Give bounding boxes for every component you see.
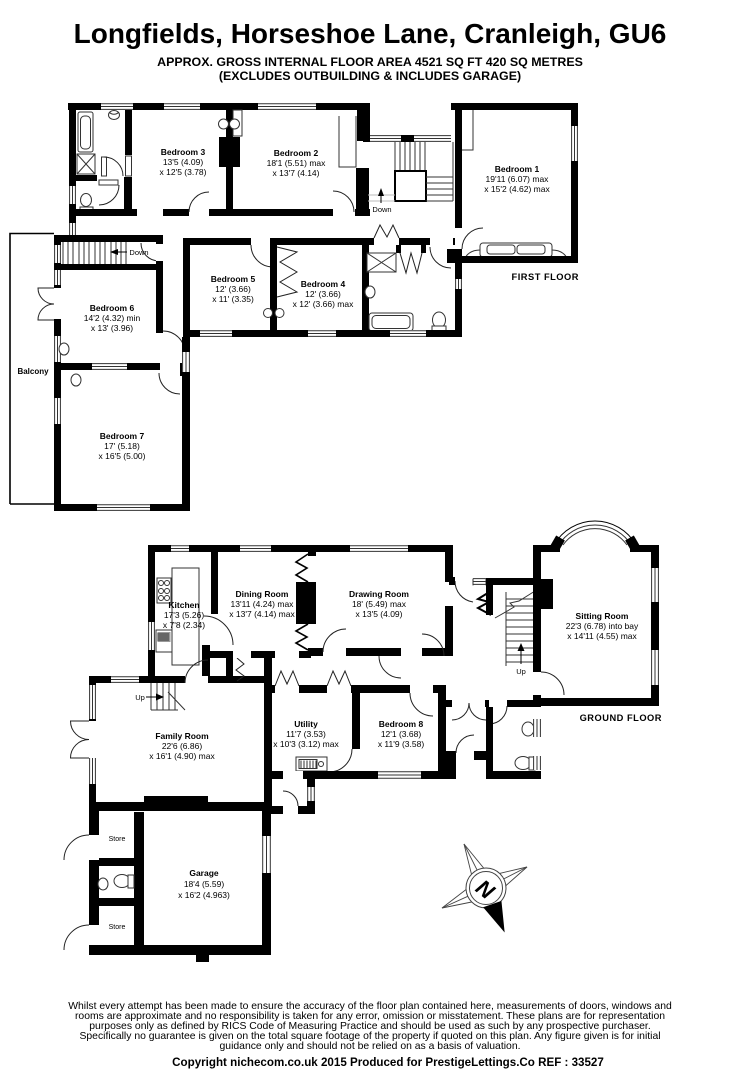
svg-text:17'3 (5.26): 17'3 (5.26) <box>164 610 205 620</box>
svg-text:18'1 (5.51) max: 18'1 (5.51) max <box>267 158 327 168</box>
svg-text:x 16'5 (5.00): x 16'5 (5.00) <box>99 451 146 461</box>
svg-text:Bedroom 3: Bedroom 3 <box>161 147 206 157</box>
svg-text:x 12' (3.66) max: x 12' (3.66) max <box>293 299 354 309</box>
svg-text:x 16'2 (4.963): x 16'2 (4.963) <box>178 890 230 900</box>
svg-text:Dining Room: Dining Room <box>236 589 289 599</box>
svg-text:18' (5.49) max: 18' (5.49) max <box>352 599 407 609</box>
svg-text:APPROX. GROSS INTERNAL FLOOR A: APPROX. GROSS INTERNAL FLOOR AREA 4521 S… <box>157 55 583 69</box>
svg-text:x 11'9 (3.58): x 11'9 (3.58) <box>378 739 425 749</box>
svg-text:Utility: Utility <box>294 719 318 729</box>
svg-text:18'4 (5.59): 18'4 (5.59) <box>184 879 225 889</box>
svg-text:Store: Store <box>109 836 126 843</box>
svg-text:Bedroom 4: Bedroom 4 <box>301 279 346 289</box>
svg-text:Copyright nichecom.co.uk 2015: Copyright nichecom.co.uk 2015 Produced f… <box>172 1056 604 1069</box>
svg-text:Bedroom 2: Bedroom 2 <box>274 148 319 158</box>
svg-text:Store: Store <box>109 924 126 931</box>
svg-text:x 13'7 (4.14) max: x 13'7 (4.14) max <box>229 609 295 619</box>
svg-text:Family Room: Family Room <box>155 731 209 741</box>
svg-text:14'2 (4.32) min: 14'2 (4.32) min <box>84 313 141 323</box>
svg-text:13'5 (4.09): 13'5 (4.09) <box>163 157 204 167</box>
svg-text:x 13'7 (4.14): x 13'7 (4.14) <box>273 168 320 178</box>
svg-text:Bedroom 8: Bedroom 8 <box>379 719 424 729</box>
svg-text:x 14'11 (4.55) max: x 14'11 (4.55) max <box>567 631 637 641</box>
svg-text:Up: Up <box>516 667 526 676</box>
svg-text:Up: Up <box>135 693 145 702</box>
svg-text:11'7 (3.53): 11'7 (3.53) <box>286 729 326 739</box>
svg-text:(EXCLUDES OUTBUILDING & INCLUD: (EXCLUDES OUTBUILDING & INCLUDES GARAGE) <box>219 69 521 83</box>
svg-text:x 12'5 (3.78): x 12'5 (3.78) <box>160 167 207 177</box>
svg-text:GROUND FLOOR: GROUND FLOOR <box>580 713 662 723</box>
svg-text:17' (5.18): 17' (5.18) <box>104 441 140 451</box>
svg-text:Kitchen: Kitchen <box>168 600 199 610</box>
svg-text:13'11 (4.24) max: 13'11 (4.24) max <box>231 599 295 609</box>
svg-text:Bedroom 1: Bedroom 1 <box>495 164 540 174</box>
svg-text:Drawing Room: Drawing Room <box>349 589 409 599</box>
svg-text:12' (3.66): 12' (3.66) <box>305 289 341 299</box>
svg-text:Bedroom 6: Bedroom 6 <box>90 303 135 313</box>
svg-text:Garage: Garage <box>189 868 219 878</box>
svg-text:x 13'5 (4.09): x 13'5 (4.09) <box>356 609 403 619</box>
svg-text:Balcony: Balcony <box>17 367 49 376</box>
svg-text:x 11' (3.35): x 11' (3.35) <box>212 294 254 304</box>
svg-text:FIRST FLOOR: FIRST FLOOR <box>512 272 579 282</box>
svg-text:Sitting Room: Sitting Room <box>576 611 629 621</box>
svg-text:x 10'3 (3.12) max: x 10'3 (3.12) max <box>273 739 339 749</box>
svg-text:guidance only and should not b: guidance only and should not be relied o… <box>220 1041 521 1052</box>
svg-text:Down: Down <box>372 205 391 214</box>
svg-text:19'11 (6.07) max: 19'11 (6.07) max <box>486 174 550 184</box>
svg-text:22'6 (6.86): 22'6 (6.86) <box>162 741 203 751</box>
svg-text:12'1 (3.68): 12'1 (3.68) <box>381 729 422 739</box>
svg-text:x 13' (3.96): x 13' (3.96) <box>91 323 133 333</box>
svg-text:Bedroom 5: Bedroom 5 <box>211 274 256 284</box>
svg-text:Bedroom 7: Bedroom 7 <box>100 431 145 441</box>
svg-text:Longfields, Horseshoe Lane, Cr: Longfields, Horseshoe Lane, Cranleigh, G… <box>74 18 667 49</box>
svg-text:x 7'8 (2.34): x 7'8 (2.34) <box>163 620 205 630</box>
svg-text:22'3 (6.78) into bay: 22'3 (6.78) into bay <box>566 621 639 631</box>
svg-text:x 16'1 (4.90) max: x 16'1 (4.90) max <box>149 751 215 761</box>
svg-text:12' (3.66): 12' (3.66) <box>215 284 251 294</box>
svg-text:x 15'2 (4.62) max: x 15'2 (4.62) max <box>484 184 550 194</box>
